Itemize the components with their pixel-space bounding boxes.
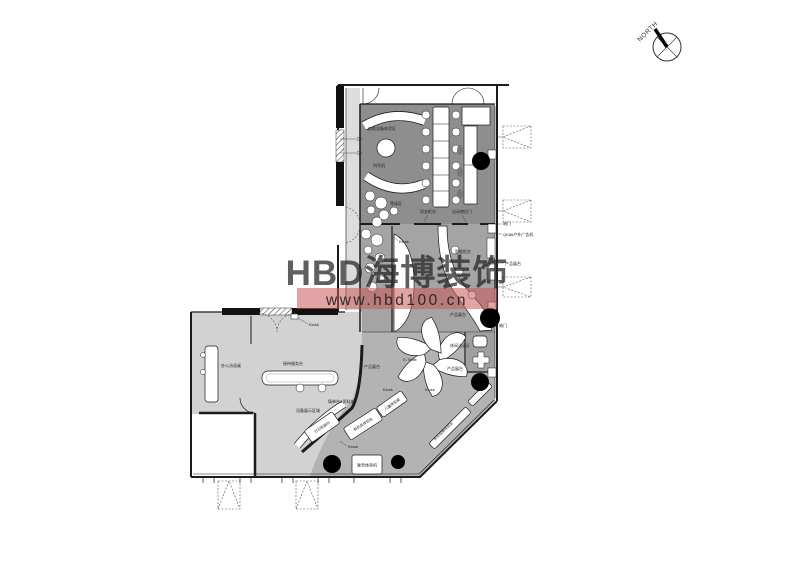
label-ticket-machine: 叫号机: [373, 162, 385, 168]
right-callout-2: [497, 200, 531, 222]
ticket-machine-table: [377, 139, 395, 157]
watermark-brand: HBD海博装饰: [286, 254, 509, 293]
wall-hatch-1: [336, 130, 344, 162]
composite-machine-box: 复合体验机: [352, 455, 382, 474]
label-product-booth-teller: 产品展台: [450, 311, 466, 317]
label-product-booth-l: 产品展台: [364, 363, 380, 369]
label-kiosk-pin2: Kiosk: [425, 387, 435, 392]
bottom-callout-2: [296, 481, 318, 509]
label-self-service: 自助设备体验区: [368, 125, 396, 131]
label-hidden-door-2: 暗门: [499, 322, 507, 328]
label-cash-counter: 现金柜台: [420, 208, 436, 214]
floorplan-page: 打印机展台 新机具体验台 儿童体验桌 复合体验机: [0, 0, 800, 570]
label-kiosk-pin1: Kiosk: [383, 387, 393, 392]
north-arrow: NORTH: [636, 20, 681, 61]
floorplan-drawing: 打印机展台 新机具体验台 儿童体验桌 复合体验机: [0, 0, 800, 570]
watermark-url: www.hbd100.cn: [325, 292, 468, 309]
watermark: HBD海博装饰 www.hbd100.cn: [286, 254, 509, 309]
pilaster-4: [488, 368, 496, 377]
label-device-display: 设备展示区域: [296, 407, 320, 413]
chair-3: [457, 189, 463, 199]
bottom-callout-1: [218, 481, 240, 509]
label-kiosk-curve: Kiosk: [348, 444, 358, 449]
chair-2: [457, 167, 463, 177]
label-kiosk-entrance: Kiosk: [309, 322, 319, 327]
label-product-booth-r: 产品展台: [447, 365, 463, 371]
label-kiosk-teller: Kiosk: [399, 239, 409, 244]
desk-stool: [201, 353, 206, 358]
counter-stool: [318, 384, 326, 392]
label-hidden-door-1: 暗门: [503, 220, 511, 226]
label-ad-screen: QK86户外广告机: [503, 231, 533, 237]
office-desk: [205, 346, 218, 402]
label-waiting: 等候区: [390, 200, 402, 206]
reception-counter: [262, 371, 338, 385]
lounge-chair: [473, 336, 487, 347]
pilaster-2: [488, 224, 496, 233]
cabinet-top-right: [462, 107, 490, 125]
label-etable: E-Table: [403, 357, 417, 362]
chair-1: [457, 145, 463, 155]
label-auto-door: 自动感应门: [452, 208, 472, 214]
door-top-left: [363, 88, 379, 104]
column-office: [472, 152, 490, 170]
label-reception: 接待服务台: [283, 360, 303, 366]
label-lounge: 休闲洽谈区: [450, 342, 470, 348]
counter-stool: [296, 384, 304, 392]
door-top-double: [452, 88, 484, 104]
wall-hatch-2: [260, 308, 292, 315]
svg-text:复合体验机: 复合体验机: [357, 462, 377, 468]
column-teller: [480, 308, 500, 328]
desk-stool: [201, 370, 206, 375]
wall-fill-1: [336, 86, 344, 128]
column-2: [391, 455, 405, 469]
wall-fill-4: [292, 308, 338, 315]
wall-fill-2: [336, 162, 344, 206]
right-callout-1: [497, 126, 531, 148]
wall-fill-3: [222, 308, 260, 315]
back-office-floor: [192, 414, 254, 476]
label-form-counter: 填单台&资料架: [328, 398, 355, 404]
label-office-desk: 办公洽谈桌: [221, 362, 241, 368]
entrance-kiosk: [291, 314, 298, 319]
column-3: [471, 373, 489, 391]
column-1: [323, 455, 341, 473]
